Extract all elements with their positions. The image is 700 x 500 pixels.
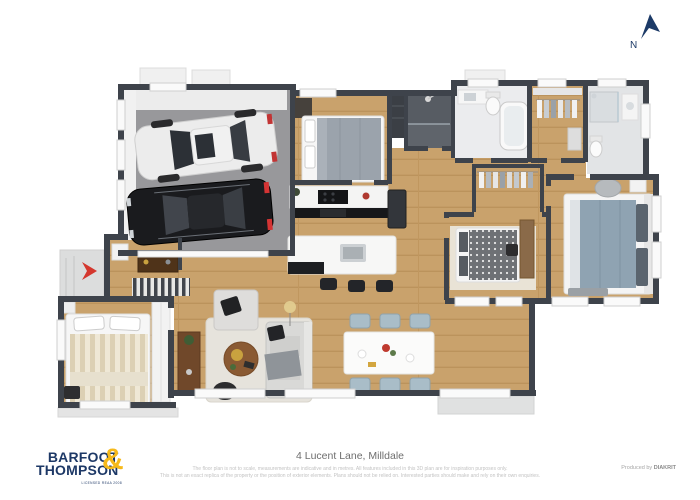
disclaimer-line-1: The floor plan is not to scale, measurem…: [192, 466, 507, 472]
north-compass-icon: N: [624, 8, 672, 52]
brand-tagline: LICENSED REAA 2008: [36, 481, 122, 485]
property-address: 4 Lucent Lane, Milldale: [0, 450, 700, 462]
floor-plan-page: N BARFOOT THOMPSON & LICENSED REAA 2008 …: [0, 0, 700, 500]
room-bedroom-3: [456, 220, 534, 282]
room-wardrobe-2: [477, 172, 538, 188]
producer-name: DIAKRIT: [654, 465, 676, 471]
compass-north-label: N: [630, 40, 637, 51]
room-master-bedroom: [564, 179, 653, 296]
disclaimer-line-2: This is not an exact replica of the prop…: [160, 473, 540, 479]
produced-by-label: Produced by: [621, 465, 652, 471]
producer-credit: Produced by DIAKRIT: [621, 465, 676, 471]
floor-plan-illustration: [0, 0, 700, 500]
room-bedroom-1: [62, 302, 170, 404]
black-car: [126, 178, 274, 246]
room-dining: [344, 314, 434, 392]
